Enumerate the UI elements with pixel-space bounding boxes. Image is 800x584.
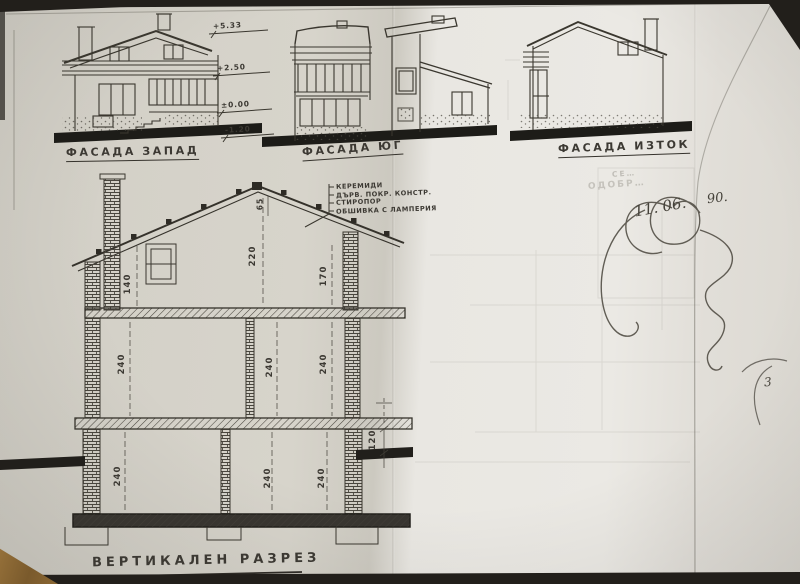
handwritten-year: 90. [706,191,728,206]
dim-attic-height: 220 [249,246,258,267]
dim-floor1-right: 240 [318,468,327,489]
facade-west-label: ФАСАДА ЗАПАД [66,145,199,162]
drawing-linework [0,0,800,584]
dim-floor2-left: 240 [118,354,127,375]
dim-rafter: 65 [256,198,264,210]
sheet-frame [6,3,770,580]
page-mark-arc [742,359,787,425]
elevation-mark-floor1: +2.50 [217,63,246,72]
dim-floor2-right: 240 [320,354,329,375]
dim-attic-window: 140 [124,274,133,295]
roof-layer-label-tiles: КЕРЕМИДИ [336,182,383,190]
south-facade-drawing [262,16,497,147]
elevation-mark-zero: ±0.00 [221,100,250,109]
blueprint-photo: ФАСАДА ЗАПАД ФАСАДА ЮГ ФАСАДА ИЗТОК +5.3… [0,0,800,584]
east-facade-drawing [510,19,692,141]
photo-edge-left [0,0,5,120]
handwritten-page-mark: 3 [763,376,772,389]
dim-floor1-mid: 240 [264,468,273,489]
west-facade-drawing [54,14,262,143]
dim-knee-wall: 170 [320,266,329,287]
dim-plinth: 120 [369,430,378,451]
roof-layer-label-insulation: СТИРОПОР [336,198,381,206]
dim-floor2-mid: 240 [266,357,275,378]
dim-floor1-left: 240 [114,466,123,487]
stamp-line-1: СЕ… [612,169,637,178]
section-drawing [0,174,413,577]
elevation-mark-ridge: +5.33 [213,21,242,30]
signature [440,170,732,370]
elevation-mark-basement: -1.20 [225,125,251,134]
